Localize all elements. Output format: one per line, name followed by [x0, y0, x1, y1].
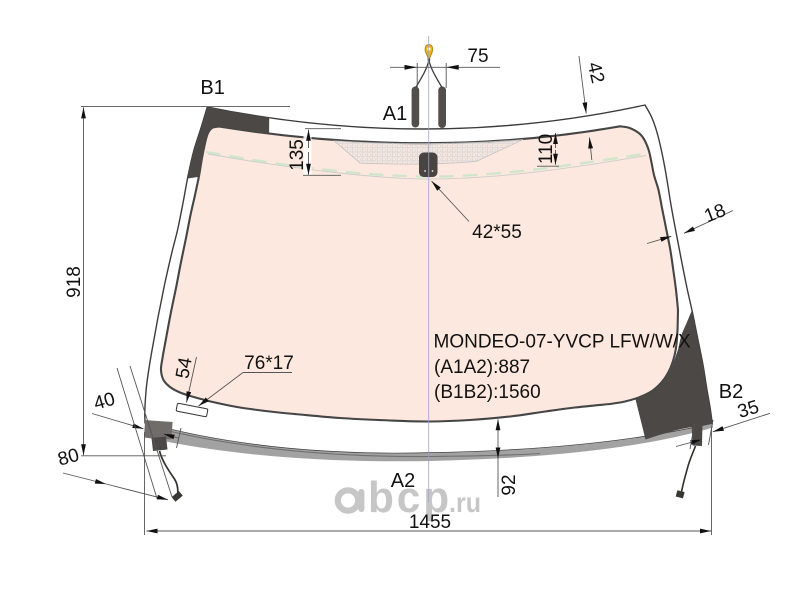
svg-text:918: 918	[64, 266, 85, 298]
svg-text:135: 135	[287, 139, 308, 171]
svg-text:92: 92	[499, 474, 520, 495]
svg-text:.ru: .ru	[449, 487, 481, 518]
svg-text:A1: A1	[383, 103, 407, 125]
svg-text:(A1A2):887: (A1A2):887	[434, 357, 530, 378]
svg-text:B2: B2	[719, 381, 743, 403]
svg-text:76*17: 76*17	[244, 353, 294, 374]
svg-text:110: 110	[536, 134, 557, 164]
svg-text:1455: 1455	[409, 512, 451, 533]
svg-text:MONDEO-07-YVCP LFW/W/X: MONDEO-07-YVCP LFW/W/X	[434, 332, 692, 353]
svg-text:(B1B2):1560: (B1B2):1560	[434, 382, 541, 403]
svg-text:54: 54	[172, 355, 196, 380]
svg-text:B1: B1	[200, 77, 224, 99]
svg-text:A2: A2	[391, 470, 415, 492]
svg-text:42*55: 42*55	[472, 222, 522, 243]
svg-text:75: 75	[467, 46, 488, 67]
